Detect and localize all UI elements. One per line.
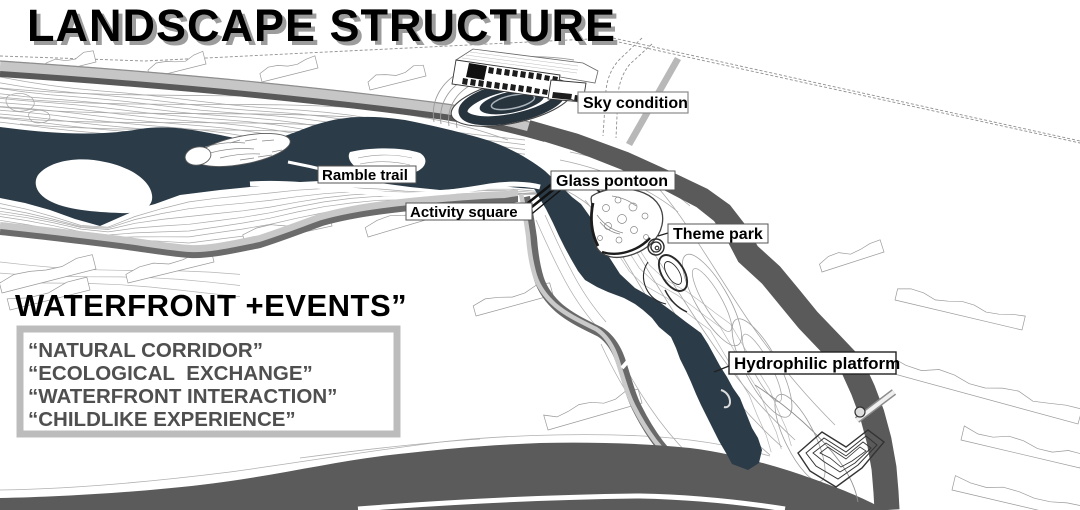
svg-text:WATERFRONT +EVENTS”: WATERFRONT +EVENTS” xyxy=(15,288,407,323)
svg-text:Glass pontoon: Glass pontoon xyxy=(556,173,668,190)
svg-text:Theme park: Theme park xyxy=(673,226,763,243)
svg-text:Hydrophilic platform: Hydrophilic platform xyxy=(734,354,900,373)
svg-text:Activity square: Activity square xyxy=(410,204,518,221)
svg-text:LANDSCAPE STRUCTURE: LANDSCAPE STRUCTURE xyxy=(27,0,616,51)
svg-text:“NATURAL CORRIDOR”: “NATURAL CORRIDOR” xyxy=(28,339,263,362)
svg-text:“CHILDLIKE EXPERIENCE”: “CHILDLIKE EXPERIENCE” xyxy=(28,408,296,431)
svg-text:Sky condition: Sky condition xyxy=(583,95,688,112)
svg-text:“WATERFRONT INTERACTION”: “WATERFRONT INTERACTION” xyxy=(28,385,337,408)
svg-text:Ramble trail: Ramble trail xyxy=(322,167,408,184)
svg-text:“ECOLOGICAL EXCHANGE”: “ECOLOGICAL EXCHANGE” xyxy=(28,362,313,385)
